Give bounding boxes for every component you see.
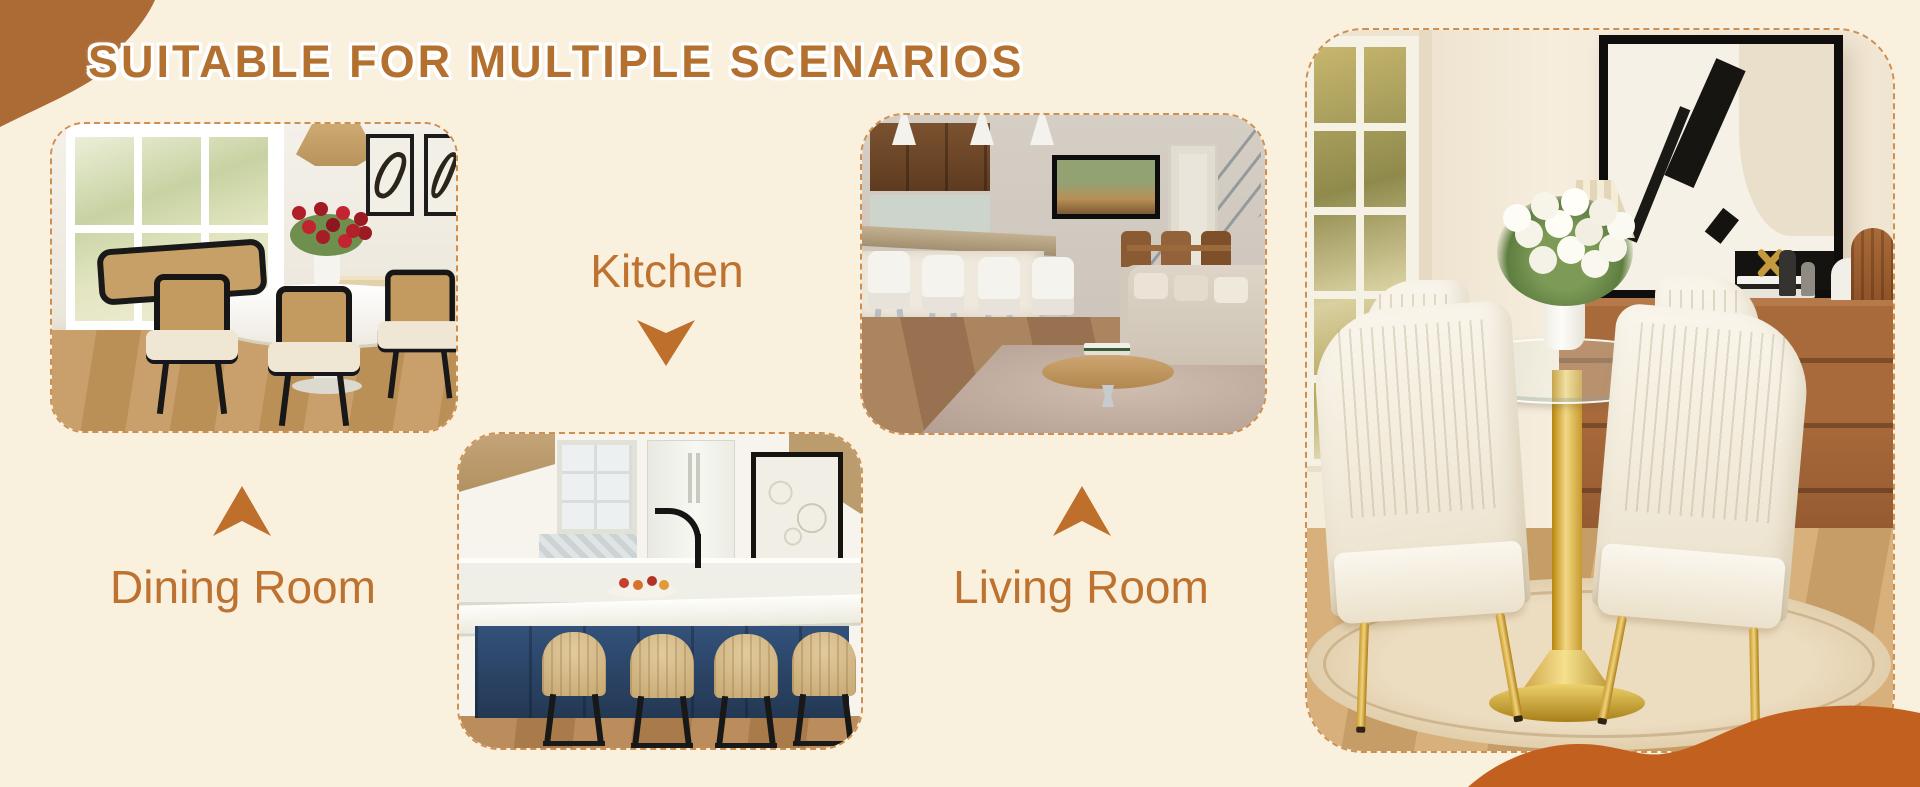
brush-stroke	[1705, 208, 1739, 244]
tulip-bouquet	[1485, 180, 1645, 310]
promo-banner: SUITABLE FOR MULTIPLE SCENARIOS	[0, 0, 1920, 787]
chair-legs	[387, 351, 453, 399]
stool-legs	[793, 694, 855, 746]
flower-bouquet	[274, 200, 380, 264]
dining-chair	[1581, 302, 1813, 739]
photo-kitchen	[457, 432, 863, 750]
label-living-room: Living Room	[953, 560, 1209, 614]
label-dining-room: Dining Room	[110, 560, 376, 614]
up-arrow-icon	[213, 486, 271, 536]
dining-chair	[146, 274, 238, 414]
arch-decor	[1851, 228, 1895, 300]
bar-stool	[707, 634, 785, 748]
coffee-table-books	[1084, 343, 1130, 355]
upper-cabinet	[870, 123, 990, 191]
stool-legs	[543, 694, 605, 746]
chair-seat	[1333, 540, 1526, 625]
dining-chair	[378, 270, 458, 399]
stool-legs	[715, 696, 777, 748]
wall-art	[751, 452, 843, 564]
down-arrow-icon	[637, 320, 695, 366]
decor-vase	[1779, 250, 1796, 296]
photo-dining-room	[50, 122, 458, 433]
bar-stool	[785, 632, 863, 746]
stool-legs	[631, 696, 693, 748]
chair-leg	[1495, 613, 1523, 723]
kitchen-scene	[459, 434, 861, 748]
coffee-table	[1042, 355, 1174, 409]
dinette-set	[1121, 223, 1237, 267]
living-room-scene	[862, 115, 1265, 433]
banner-title: SUITABLE FOR MULTIPLE SCENARIOS	[88, 36, 1024, 88]
brush-stroke	[1739, 44, 1834, 236]
bar-stool	[535, 632, 613, 746]
chair-leg	[1356, 623, 1369, 733]
dining-chair	[268, 286, 360, 426]
glass-cabinet	[557, 440, 637, 534]
chair-legs	[278, 374, 350, 426]
chair-leg	[1750, 628, 1761, 738]
dining-room-scene	[52, 124, 456, 431]
gold-pedestal-stem	[1552, 370, 1582, 670]
photo-hero-dining-set	[1305, 28, 1895, 753]
hero-scene	[1307, 30, 1893, 751]
wall-art	[424, 134, 458, 216]
sofa	[1120, 265, 1267, 365]
up-arrow-icon	[1053, 486, 1111, 536]
chair-leg	[1597, 616, 1627, 725]
wall-tv	[1052, 155, 1160, 219]
decor-vase	[1801, 262, 1815, 296]
food-plate	[607, 584, 677, 598]
chair-legs	[156, 362, 228, 414]
tile-backsplash	[539, 534, 637, 558]
dining-chair	[1311, 300, 1540, 735]
photo-living-room	[860, 113, 1267, 435]
bar-stool	[623, 634, 701, 748]
label-kitchen: Kitchen	[590, 244, 743, 298]
